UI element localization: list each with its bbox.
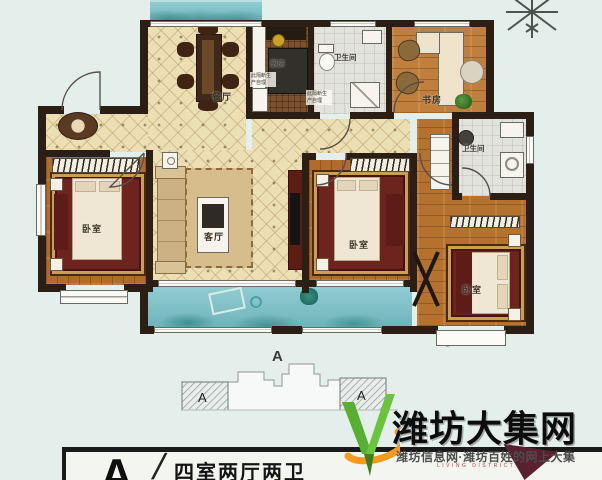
watermark-logo bbox=[334, 394, 400, 480]
bay-window bbox=[436, 330, 506, 346]
room-label-kitchen: 厨房 bbox=[270, 58, 285, 69]
floorplan-screenshot: 餐厅 厨房 卫生间 书房 卫生间 卧室 客厅 卧室 卧室 此隔断生产自理 此隔断… bbox=[0, 0, 602, 480]
wall-segment bbox=[526, 112, 534, 136]
wall-segment bbox=[386, 20, 392, 119]
wall-segment bbox=[100, 106, 148, 114]
wall-segment bbox=[246, 112, 320, 119]
toilet-bowl bbox=[319, 53, 335, 71]
wall-segment bbox=[404, 280, 412, 287]
window bbox=[302, 327, 382, 333]
room-label-bedroom-right: 卧室 bbox=[462, 283, 482, 296]
wall-segment bbox=[452, 112, 534, 119]
wall-segment bbox=[246, 20, 252, 119]
note-kitchen-partition: 此隔断生产自理 bbox=[250, 72, 276, 87]
nightstand bbox=[508, 308, 521, 321]
kitchen-stove bbox=[268, 48, 308, 94]
legend-unit-letter: A bbox=[100, 448, 133, 480]
nightstand bbox=[316, 174, 329, 187]
balcony-top bbox=[150, 0, 262, 22]
window bbox=[316, 280, 404, 287]
dining-table-runner bbox=[202, 40, 214, 94]
wall-segment bbox=[504, 326, 534, 334]
corridor-floor bbox=[252, 119, 410, 153]
wall-segment bbox=[38, 106, 46, 186]
toilet bbox=[318, 44, 334, 53]
window bbox=[158, 280, 296, 287]
wall-segment bbox=[526, 164, 534, 334]
bathroom-sink bbox=[362, 30, 382, 44]
room-label-bath-right: 卫生间 bbox=[462, 143, 485, 154]
room-label-living: 客厅 bbox=[204, 230, 224, 243]
washer-door bbox=[505, 157, 519, 171]
balcony-bottom bbox=[148, 284, 412, 328]
tv bbox=[290, 193, 300, 245]
wall-segment bbox=[272, 326, 302, 334]
room-label-dining: 餐厅 bbox=[212, 90, 232, 103]
nightstand bbox=[50, 258, 63, 271]
room-label-bedroom-middle: 卧室 bbox=[349, 238, 369, 251]
wall-segment bbox=[350, 112, 394, 119]
wall-segment bbox=[296, 280, 316, 287]
coffee-table-tray bbox=[202, 204, 224, 228]
entry-rug bbox=[58, 112, 98, 140]
wardrobe bbox=[350, 158, 410, 172]
window bbox=[150, 21, 262, 27]
room-label-bath-top: 卫生间 bbox=[334, 52, 357, 63]
sofa bbox=[157, 176, 186, 264]
nightstand bbox=[50, 178, 63, 191]
study-chair bbox=[460, 60, 484, 84]
sofa-armrest bbox=[155, 261, 186, 274]
study-plant bbox=[455, 94, 472, 109]
window bbox=[526, 136, 534, 164]
kitchen-fridge bbox=[252, 88, 268, 112]
shower-tray bbox=[350, 82, 380, 108]
wall-segment bbox=[412, 326, 438, 334]
nightstand bbox=[316, 258, 329, 271]
wall-segment bbox=[302, 153, 309, 293]
balcony-pot bbox=[250, 296, 262, 308]
hall-closet bbox=[430, 134, 450, 190]
wall-segment bbox=[146, 150, 153, 292]
window bbox=[414, 21, 470, 27]
switch-dot bbox=[167, 157, 175, 165]
wall-segment bbox=[46, 150, 110, 157]
nightstand bbox=[508, 234, 521, 247]
wall-segment bbox=[452, 193, 462, 200]
pillow bbox=[359, 180, 378, 191]
pillow bbox=[337, 180, 356, 191]
pillow bbox=[99, 181, 120, 192]
wardrobe bbox=[450, 216, 520, 228]
window bbox=[36, 184, 46, 236]
pillow bbox=[497, 255, 508, 280]
wall-segment bbox=[486, 20, 494, 119]
pillow bbox=[497, 284, 508, 309]
bedroom-middle-chaise bbox=[386, 194, 404, 246]
wall-segment bbox=[140, 20, 148, 113]
room-label-study: 书房 bbox=[422, 93, 442, 106]
wall-segment bbox=[140, 284, 148, 332]
legend-layout-title: 四室两厅两卫 bbox=[174, 456, 306, 480]
legend-divider: / bbox=[149, 446, 169, 480]
wall-segment bbox=[146, 280, 158, 287]
dining-chair bbox=[222, 74, 239, 89]
bath-right-sink bbox=[500, 122, 524, 138]
window bbox=[154, 327, 272, 333]
pillow bbox=[75, 181, 96, 192]
wall-segment bbox=[382, 326, 414, 334]
kitchen-wok bbox=[272, 34, 285, 47]
dining-chair bbox=[177, 74, 194, 89]
watermark-brand: 潍坊大集网 bbox=[392, 400, 577, 452]
footprint-left-unit-label: A bbox=[198, 390, 207, 405]
wardrobe bbox=[52, 158, 140, 173]
snowflake-icon bbox=[500, 0, 564, 38]
room-label-bedroom-left: 卧室 bbox=[82, 222, 102, 235]
dining-chair bbox=[177, 42, 194, 57]
dining-chair bbox=[222, 42, 239, 57]
bedroom-left-bench bbox=[54, 194, 68, 250]
watermark-subtext: LIVING DISTRICT bbox=[437, 463, 515, 469]
wall-segment bbox=[410, 153, 417, 292]
bay-window bbox=[60, 290, 128, 304]
note-bath-partition: 此隔断生产自理 bbox=[306, 90, 332, 105]
window bbox=[330, 21, 376, 27]
wall-segment bbox=[452, 112, 459, 200]
